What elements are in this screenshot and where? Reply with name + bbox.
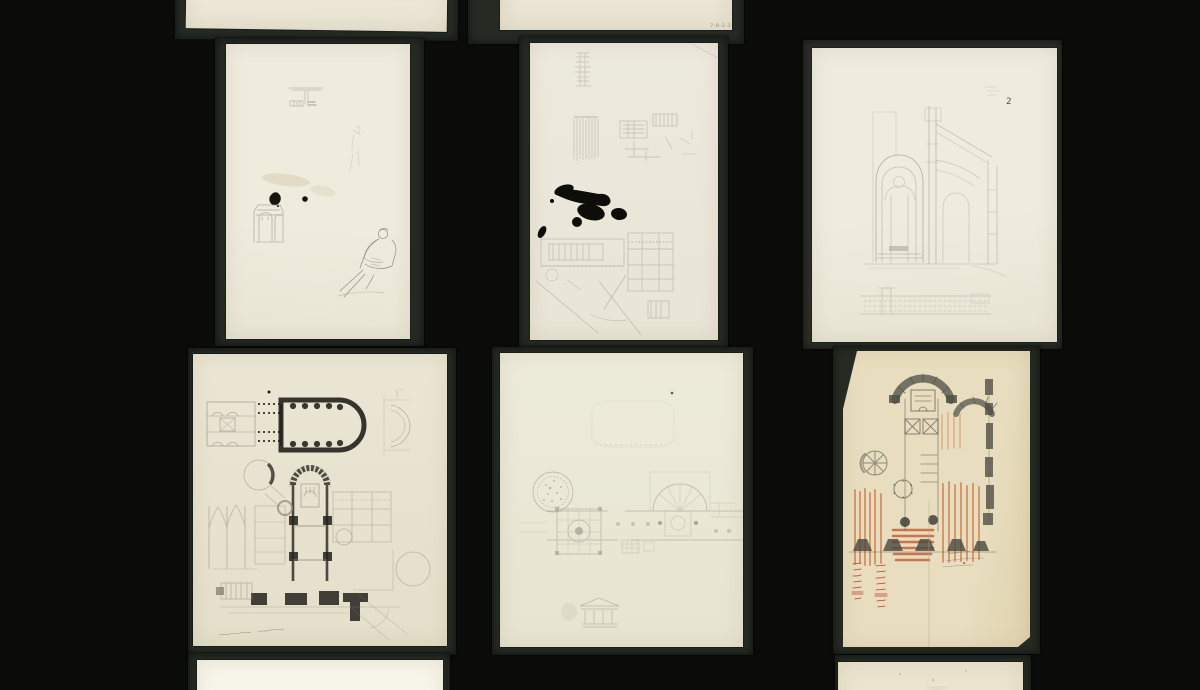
faint-plan-sketch xyxy=(500,353,743,647)
tower-study xyxy=(575,53,591,86)
standing-figure-sketch xyxy=(350,127,360,171)
site-plan xyxy=(536,233,673,335)
orange-hatching xyxy=(855,482,979,565)
basilica-plan xyxy=(207,390,410,454)
arcade-study xyxy=(574,117,598,161)
sheet-mid-left-paper xyxy=(226,44,410,339)
bottom-piers xyxy=(853,539,989,551)
crossing-bays xyxy=(905,419,938,434)
sheet-bottom-right-paper xyxy=(843,351,1030,647)
sheet-top-left[interactable] xyxy=(175,0,458,41)
stamp-sketch xyxy=(533,472,573,512)
sheet-top-center-paper: 7-8-2-3 xyxy=(500,0,732,30)
site-studies-sketch xyxy=(530,43,718,340)
sheet-number: 2 xyxy=(1006,97,1012,107)
crossing-piers xyxy=(289,516,332,561)
figure-studies-sketch xyxy=(226,44,410,339)
long-plan xyxy=(520,472,743,555)
detail-block xyxy=(216,583,252,599)
faint-scribble xyxy=(986,87,1000,95)
sheet-lower-right[interactable] xyxy=(835,655,1031,690)
portico-sketch xyxy=(580,598,619,627)
building-studies xyxy=(620,114,696,161)
arcade-elevation xyxy=(209,505,257,569)
sheet-mid-right[interactable]: 2 xyxy=(803,40,1062,349)
facade-elevation xyxy=(861,288,991,314)
red-tally-notes xyxy=(852,563,887,607)
church-plans-sketch xyxy=(193,354,447,646)
sheet-mid-left[interactable] xyxy=(215,38,424,346)
sheet-top-left-paper xyxy=(186,0,448,32)
church-complex-plan xyxy=(209,460,430,640)
seated-figure-sketch xyxy=(338,229,396,298)
paper-specks xyxy=(838,662,1023,690)
colonnade-dots xyxy=(258,403,280,442)
sheet-bottom-left[interactable] xyxy=(188,348,456,655)
smudge xyxy=(261,171,310,189)
sheet-lower-left-paper xyxy=(197,660,443,690)
sheet-lower-left[interactable] xyxy=(188,653,450,690)
pier-poche xyxy=(251,591,368,621)
church-section xyxy=(864,106,1007,277)
sheet-mid-center[interactable] xyxy=(519,36,728,348)
archive-scan-grid: 7-8-2-3 xyxy=(0,0,1200,690)
church-section-sketch: 2 xyxy=(812,48,1057,342)
pearl-circle xyxy=(893,479,912,498)
handwritten-caption xyxy=(219,629,284,635)
portal-sketch xyxy=(254,205,284,242)
corner-crease xyxy=(692,44,718,58)
apse-top xyxy=(889,374,957,411)
beam-detail-sketch xyxy=(289,88,323,106)
offset-ghost xyxy=(592,401,674,447)
apse-fragment xyxy=(384,390,410,454)
chapel-scallops xyxy=(290,403,343,447)
sheet-mid-center-paper xyxy=(530,43,718,340)
sheet-bottom-center-paper xyxy=(500,353,743,647)
red-chalk-plan-sketch xyxy=(843,351,1030,647)
sheet-bottom-right[interactable] xyxy=(833,346,1040,654)
rose-window-plan xyxy=(861,451,887,475)
pencil-code-inscription: 7-8-2-3 xyxy=(710,23,731,29)
sheet-lower-right-paper xyxy=(838,662,1023,690)
sheet-mid-right-paper: 2 xyxy=(812,48,1057,342)
sheet-bottom-center[interactable] xyxy=(492,347,753,655)
sheet-bottom-left-paper xyxy=(193,354,447,646)
cloister-grid xyxy=(333,492,391,542)
ink-dot xyxy=(671,392,674,395)
ink-blot xyxy=(536,182,628,239)
